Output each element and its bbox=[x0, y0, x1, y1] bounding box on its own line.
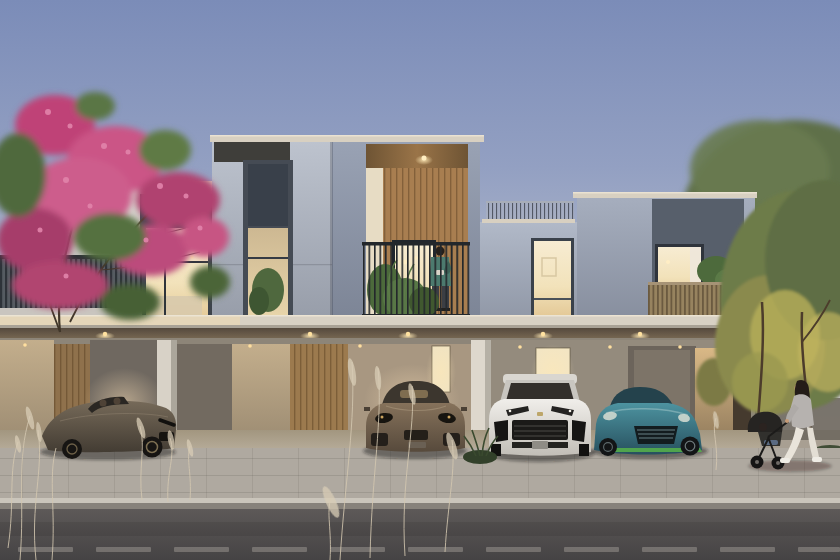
middle-recess-unit bbox=[480, 201, 577, 333]
central-balcony-bay bbox=[358, 144, 474, 331]
side-intake bbox=[371, 433, 388, 446]
cap-highlight bbox=[210, 135, 484, 137]
wood-soffit bbox=[366, 144, 468, 168]
upper-dark-glass bbox=[248, 164, 288, 226]
drl-dot bbox=[448, 416, 451, 419]
sneaker bbox=[812, 457, 822, 462]
license-plate bbox=[408, 442, 426, 448]
skid-plate bbox=[532, 441, 548, 449]
drl-dot bbox=[381, 416, 384, 419]
balcony-railing bbox=[362, 243, 470, 319]
badge bbox=[537, 412, 543, 416]
sneaker bbox=[780, 458, 790, 463]
cap-highlight bbox=[573, 192, 757, 194]
indoor-plant bbox=[249, 287, 269, 315]
mirror bbox=[364, 407, 370, 411]
drl-dot bbox=[509, 410, 512, 413]
window-mullion bbox=[248, 257, 288, 259]
hand bbox=[785, 419, 789, 423]
mirror bbox=[461, 407, 467, 411]
parapet-cap bbox=[210, 136, 484, 142]
parapet-cap bbox=[573, 193, 757, 198]
headrest bbox=[100, 400, 107, 407]
central-tower bbox=[210, 135, 484, 333]
wheel-hub bbox=[776, 461, 780, 465]
curb-face bbox=[0, 503, 840, 510]
canopy-slab bbox=[0, 315, 775, 340]
render-image bbox=[0, 0, 840, 560]
tire-wear-band bbox=[0, 522, 840, 536]
front-wheel bbox=[142, 437, 163, 458]
child-head bbox=[759, 423, 767, 431]
corner-reveal bbox=[330, 141, 333, 333]
corner-intake bbox=[572, 420, 586, 442]
tall-lit-window bbox=[534, 241, 571, 317]
front-grille bbox=[634, 426, 678, 444]
center-grille bbox=[404, 430, 428, 440]
ceiling-downlight bbox=[422, 156, 427, 161]
drl-dot bbox=[569, 410, 572, 413]
rear-wheel bbox=[599, 438, 617, 456]
slab-edge bbox=[0, 325, 775, 328]
parapet-cap bbox=[482, 219, 575, 223]
scene-stage bbox=[0, 0, 840, 560]
curb-top bbox=[0, 498, 840, 503]
roof-railing-top bbox=[486, 201, 574, 203]
window-mullion bbox=[534, 298, 571, 300]
wheel-hub bbox=[755, 460, 759, 464]
headrest bbox=[114, 398, 121, 405]
windshield-glass bbox=[506, 383, 574, 401]
car-urus bbox=[489, 374, 591, 456]
railing-top-rail bbox=[362, 242, 470, 246]
roof-notch-shadow bbox=[214, 142, 290, 162]
front-wheel bbox=[681, 437, 700, 456]
wheel bbox=[579, 444, 589, 456]
front-grille bbox=[512, 420, 568, 440]
interior-lamp bbox=[666, 260, 670, 264]
rear-wheel bbox=[62, 439, 82, 459]
roof-railing-slats bbox=[486, 202, 574, 220]
